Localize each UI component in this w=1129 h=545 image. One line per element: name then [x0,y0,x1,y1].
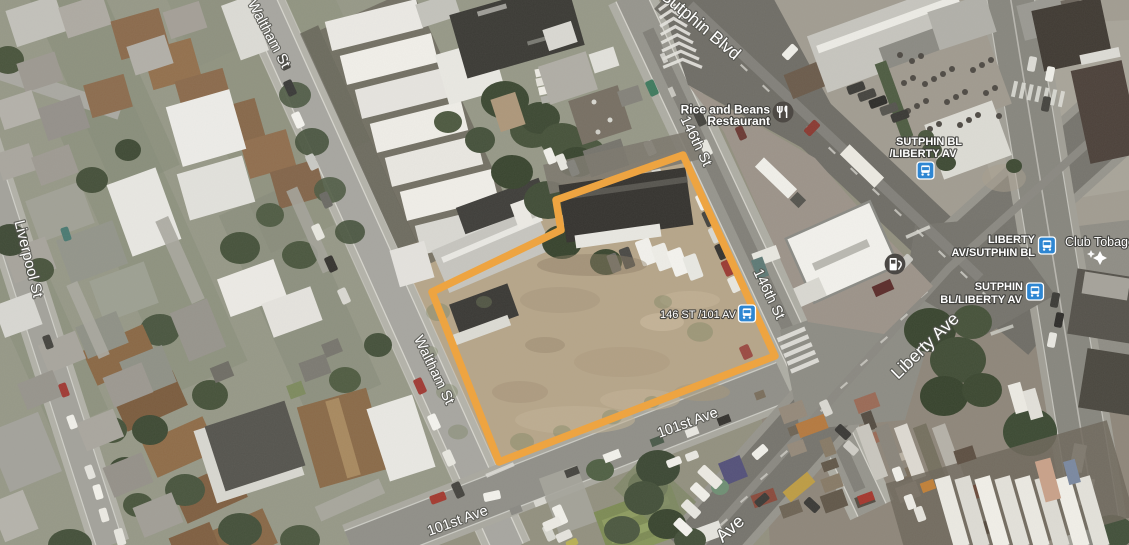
svg-text:/LIBERTY AV: /LIBERTY AV [889,148,957,160]
svg-text:LIBERTY: LIBERTY [988,234,1036,246]
svg-text:Club Tobago: Club Tobago [1065,235,1129,249]
svg-text:SUTPHIN: SUTPHIN [975,281,1023,293]
svg-text:Restaurant: Restaurant [707,114,770,128]
svg-text:SUTPHIN BL: SUTPHIN BL [896,136,962,148]
svg-text:146 ST /101 AV: 146 ST /101 AV [660,309,737,321]
svg-text:AV/SUTPHIN BL: AV/SUTPHIN BL [951,247,1035,259]
svg-text:BL/LIBERTY AV: BL/LIBERTY AV [940,294,1022,306]
